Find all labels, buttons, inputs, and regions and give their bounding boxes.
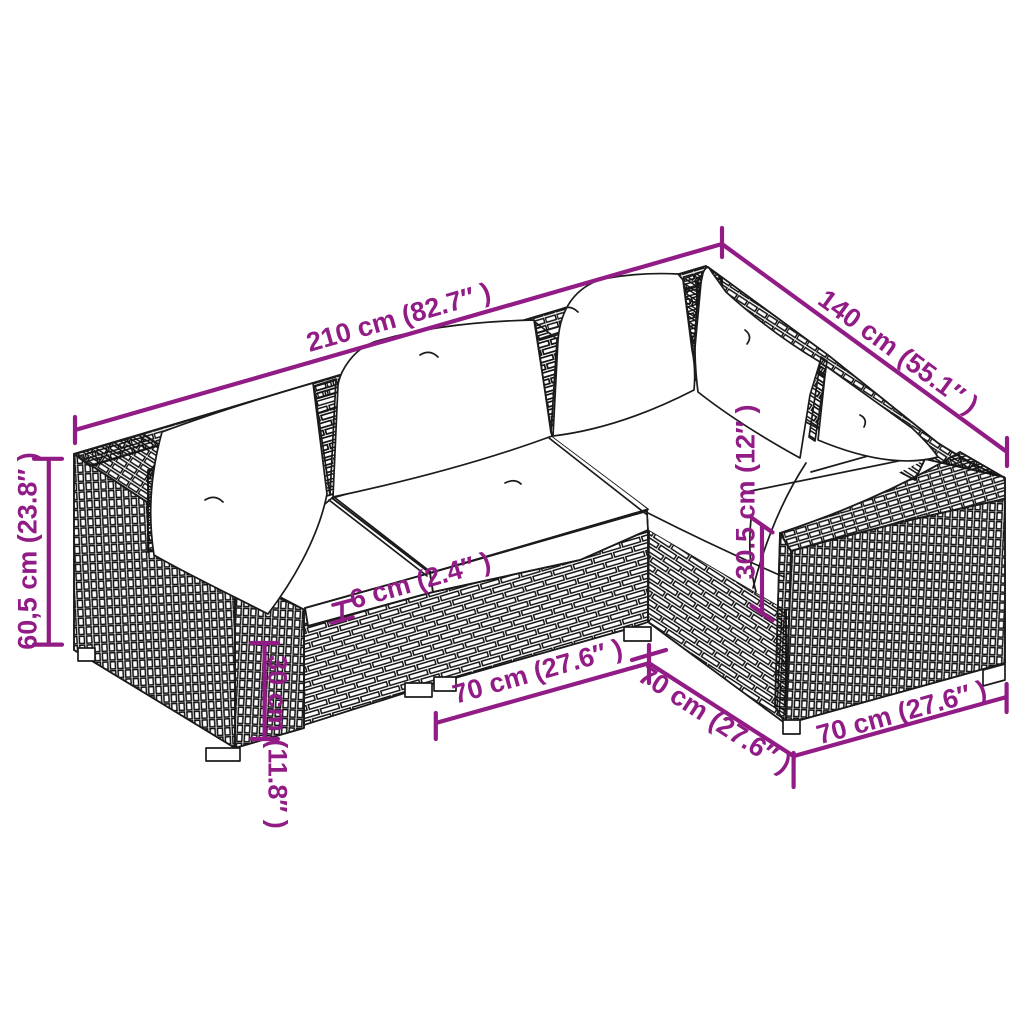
svg-text:30 cm (11.8″ ): 30 cm (11.8″ ) (263, 655, 293, 829)
svg-text:60,5 cm (23.8″ ): 60,5 cm (23.8″ ) (13, 452, 43, 650)
svg-text:30.5 cm (12″ ): 30.5 cm (12″ ) (730, 404, 760, 579)
